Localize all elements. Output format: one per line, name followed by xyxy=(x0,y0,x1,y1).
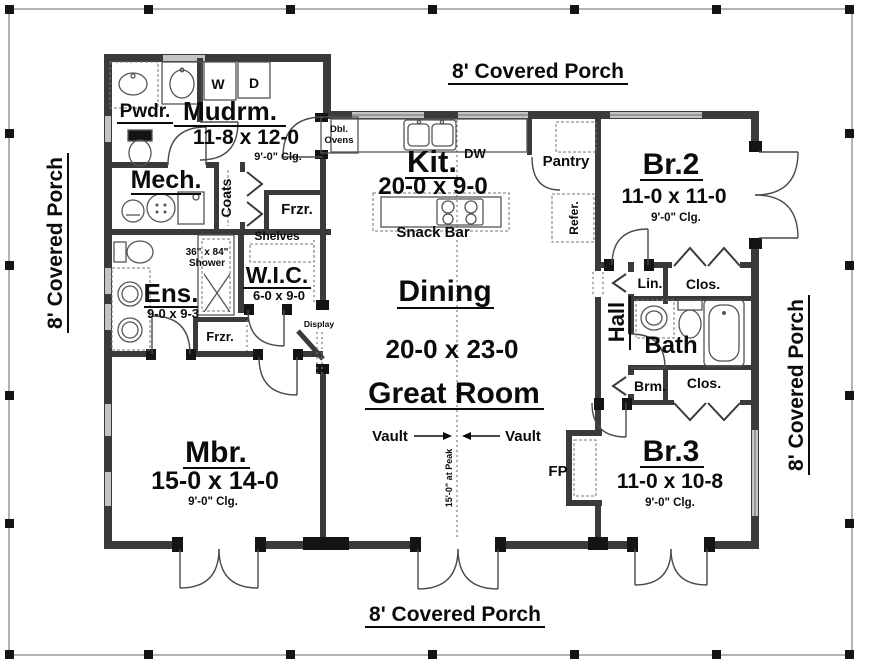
ens-toilet xyxy=(127,241,153,263)
floor-plan-svg: 8' Covered Porch 8' Covered Porch 8' Cov… xyxy=(0,0,869,664)
shelf-unit xyxy=(250,244,314,262)
ens-label: Ens. xyxy=(144,278,199,308)
frzr-lower-label: Frzr. xyxy=(206,329,233,344)
wic-fixtures xyxy=(250,244,314,262)
shelves-label: Shelves xyxy=(254,229,300,243)
clos-bottom-label: Clos. xyxy=(687,375,721,391)
mbr-dims: 15-0 x 14-0 xyxy=(151,467,279,495)
ens-toilet-tank xyxy=(114,242,126,262)
wic-dims: 6-0 x 9-0 xyxy=(253,288,305,303)
bath-toilet-tank xyxy=(678,300,702,310)
mudrm-dims: 11-8 x 12-0 xyxy=(193,126,299,149)
dbl-ovens-line1: Dbl. xyxy=(330,124,348,135)
br2-label: Br.2 xyxy=(643,148,700,181)
dining-label: Dining xyxy=(398,275,491,308)
floor-plan-page: 8' Covered Porch 8' Covered Porch 8' Cov… xyxy=(0,0,869,664)
br3-dims: 11-0 x 10-8 xyxy=(617,470,724,493)
great-room-label: Great Room xyxy=(368,377,540,410)
ens-dims: 9-0 x 9-3 xyxy=(147,306,199,321)
clos-top-label: Clos. xyxy=(686,276,720,292)
br2-dims: 11-0 x 11-0 xyxy=(621,185,726,208)
peak-height-label: 15'-0" at Peak xyxy=(444,448,454,507)
porch-bottom-label: 8' Covered Porch xyxy=(369,603,541,626)
dbl-ovens-line2: Ovens xyxy=(324,135,353,146)
brm-label: Brm. xyxy=(634,378,666,394)
pantry-label: Pantry xyxy=(543,153,590,170)
porch-top-label: 8' Covered Porch xyxy=(452,60,624,83)
snack-bar-label: Snack Bar xyxy=(396,224,470,241)
coats-label: Coats xyxy=(218,178,234,217)
dryer-label: D xyxy=(249,75,259,91)
wic-label: W.I.C. xyxy=(246,262,309,288)
washer-label: W xyxy=(211,76,225,92)
mech-label: Mech. xyxy=(131,166,202,194)
frzr-upper-label: Frzr. xyxy=(281,201,313,218)
lin-label: Lin. xyxy=(638,275,663,291)
dw-label: DW xyxy=(464,146,486,161)
refer-label: Refer. xyxy=(567,201,581,234)
mbr-clg: 9'-0" Clg. xyxy=(188,496,238,508)
porch-left-label: 8' Covered Porch xyxy=(44,157,67,329)
bath-label: Bath xyxy=(644,332,697,359)
fp-label: FP xyxy=(548,463,567,480)
bathtub xyxy=(704,300,744,366)
br3-clg: 9'-0" Clg. xyxy=(645,497,695,509)
mudrm-label: Mudrm. xyxy=(183,96,277,126)
porch-right-label: 8' Covered Porch xyxy=(785,299,808,471)
br3-label: Br.3 xyxy=(643,435,700,468)
shower-label: Shower xyxy=(189,258,225,269)
hall-label: Hall xyxy=(604,302,629,342)
mech-fixtures xyxy=(122,192,204,224)
great-room-dims: 20-0 x 23-0 xyxy=(386,334,519,364)
kit-dims: 20-0 x 9-0 xyxy=(378,173,487,200)
mbr-label: Mbr. xyxy=(185,436,247,469)
shower-dims: 36" x 84" xyxy=(186,247,229,258)
br2-clg: 9'-0" Clg. xyxy=(651,212,701,224)
pwdr-label: Pwdr. xyxy=(120,101,171,122)
vault-right-label: Vault xyxy=(505,428,541,445)
display-label: Display xyxy=(304,319,335,329)
mudrm-clg: 9'-0" Clg. xyxy=(254,151,302,163)
vault-left-label: Vault xyxy=(372,428,408,445)
